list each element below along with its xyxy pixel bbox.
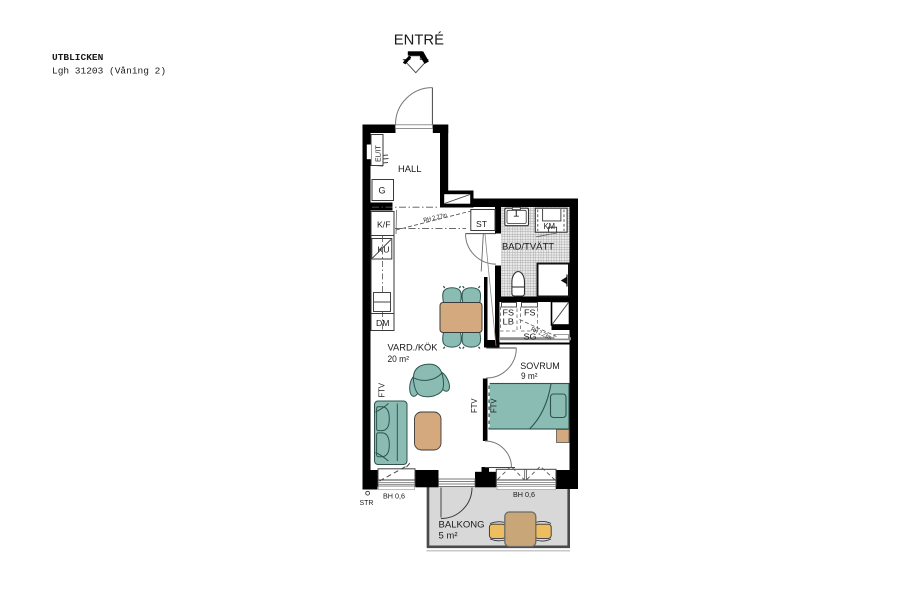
svg-text:FS: FS bbox=[503, 309, 515, 318]
svg-text:K/F: K/F bbox=[377, 221, 391, 230]
svg-text:BALKONG: BALKONG bbox=[439, 520, 485, 531]
svg-text:9 m²: 9 m² bbox=[521, 371, 538, 381]
svg-text:BAD/TVÄTT: BAD/TVÄTT bbox=[502, 242, 554, 253]
svg-text:KM: KM bbox=[544, 222, 556, 231]
svg-text:ENTRÉ: ENTRÉ bbox=[394, 32, 444, 49]
svg-text:FTV: FTV bbox=[378, 382, 387, 397]
svg-text:UTBLICKEN: UTBLICKEN bbox=[52, 52, 104, 63]
svg-text:BH 0,6: BH 0,6 bbox=[383, 492, 405, 501]
svg-text:LB: LB bbox=[503, 318, 515, 327]
svg-text:20 m²: 20 m² bbox=[388, 354, 410, 364]
svg-text:FTV: FTV bbox=[490, 398, 499, 413]
svg-text:Lgh 31203 (Våning 2): Lgh 31203 (Våning 2) bbox=[52, 66, 166, 77]
svg-text:BH 0,6: BH 0,6 bbox=[513, 490, 535, 499]
svg-text:ST: ST bbox=[476, 219, 487, 229]
svg-text:DM: DM bbox=[376, 319, 390, 328]
svg-text:HALL: HALL bbox=[398, 164, 422, 175]
svg-text:FS: FS bbox=[524, 309, 536, 318]
svg-text:VARD./KÖK: VARD./KÖK bbox=[388, 343, 439, 353]
svg-text:STR: STR bbox=[360, 498, 374, 507]
svg-text:5 m²: 5 m² bbox=[439, 531, 458, 542]
svg-text:EL/IT: EL/IT bbox=[376, 145, 383, 162]
svg-text:FTV: FTV bbox=[470, 398, 479, 413]
svg-text:KU: KU bbox=[378, 246, 390, 255]
svg-text:G: G bbox=[379, 186, 386, 196]
